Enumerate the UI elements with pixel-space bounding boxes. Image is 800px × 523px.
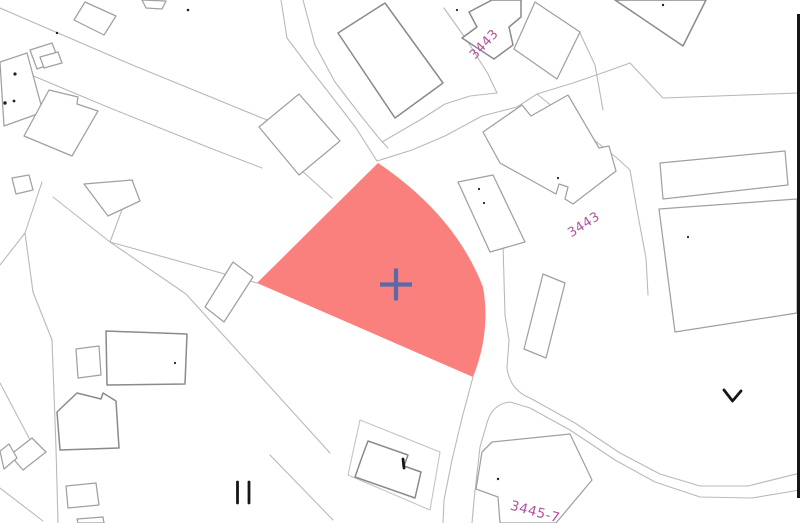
building-outline [355,441,421,498]
building-outline [660,151,788,199]
building-outline [259,94,340,175]
building-outline [74,2,116,35]
building-outline [12,175,33,194]
building-outline [77,517,104,523]
building-outline [514,2,580,79]
road-edge [443,377,473,523]
parcel-number-label: 3443 [565,209,603,241]
speck [3,101,6,104]
building-outline [106,331,187,385]
building-outline [142,0,166,9]
chevron-down-mark [724,390,741,401]
speck [56,32,58,34]
building-outline [615,0,706,46]
speck [13,100,16,103]
speck [13,72,16,75]
speck [456,9,458,11]
building-outline [0,444,17,469]
building-outline [76,346,101,378]
building-outline [66,483,99,508]
speck [187,9,190,12]
speck [557,177,559,179]
parcel-line [630,63,798,98]
cadastral-map-viewport: 3443 3443 3445-7 [0,0,800,523]
building-outline [524,274,565,358]
speck [687,236,689,238]
speck [174,362,176,364]
highlighted-parcel[interactable] [257,163,485,377]
small-dash-mark [403,459,404,468]
speck [662,4,664,6]
speck [483,202,485,204]
parcel-line [0,233,25,265]
parcel-line [0,488,43,521]
building-outline [57,393,119,450]
building-outline [84,180,140,216]
map-canvas[interactable]: 3443 3443 3445-7 [0,0,800,523]
parcel-line [580,33,603,110]
building-outline [659,199,797,332]
parcel-line [25,182,58,523]
building-outline [338,3,443,118]
parcel-line [270,455,333,520]
speck [497,478,499,480]
building-outline [458,175,525,252]
speck [478,188,480,190]
building-outline [483,95,616,204]
